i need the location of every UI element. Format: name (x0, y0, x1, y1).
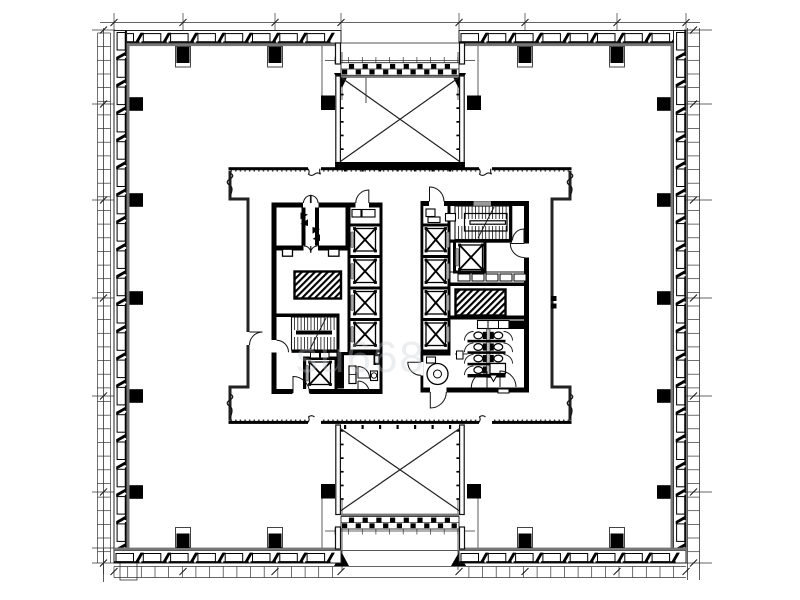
svg-text:su668: su668 (296, 333, 426, 382)
